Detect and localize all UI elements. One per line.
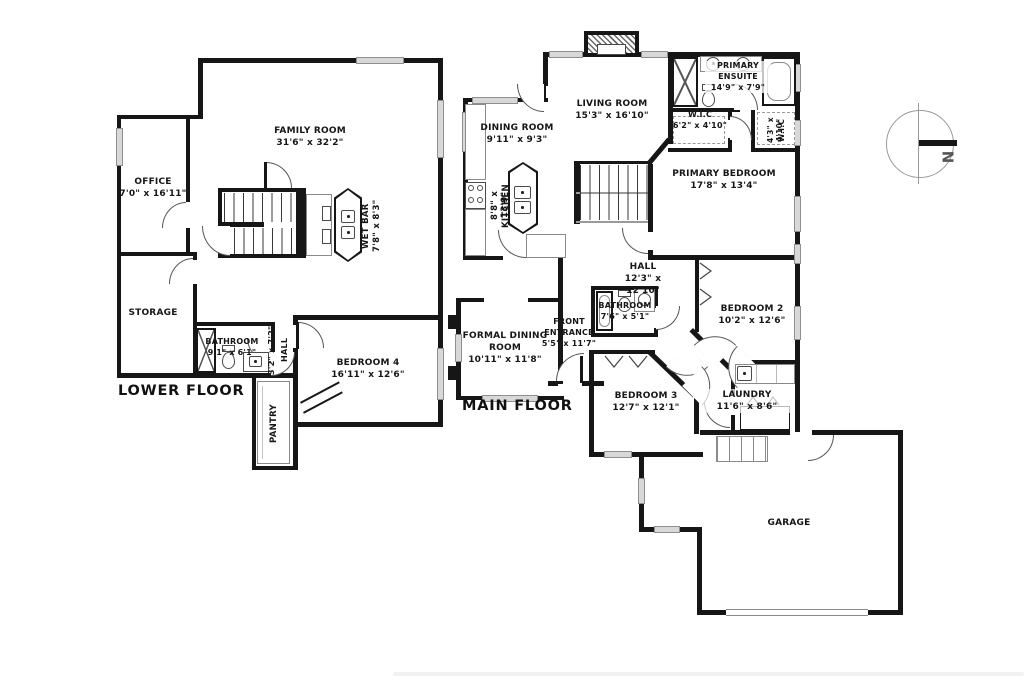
door-arc (622, 228, 648, 254)
wall (591, 350, 655, 354)
room-name: STORAGE (116, 307, 190, 319)
sink-drain (743, 372, 746, 375)
closet-door-line (300, 381, 340, 403)
room-name: BEDROOM 4 (304, 357, 432, 369)
wall (193, 322, 275, 326)
window (794, 120, 801, 146)
door-arc (517, 84, 544, 112)
wall (898, 430, 903, 615)
kitchen-counter (465, 209, 486, 256)
floor-plan-page: FAMILY ROOM 31'6" x 32'2" OFFICE 7'0" x … (0, 0, 1024, 682)
room-dims-hall-lower: 3'2" x 7'2" (267, 324, 276, 376)
room-label-bedroom3: BEDROOM 3 12'7" x 12'1" (596, 390, 696, 414)
window (654, 526, 680, 533)
stair-wall (218, 188, 298, 192)
sink-drain (347, 231, 350, 234)
room-label-hall-main: HALL 12'3" x 12'10" (607, 261, 679, 297)
pantry-shelf-line (262, 386, 263, 459)
wall (117, 115, 203, 119)
room-name-wet-bar: WET BAR (361, 196, 371, 256)
wall (548, 381, 558, 386)
wall (795, 52, 800, 432)
room-label-garage: GARAGE (756, 517, 822, 529)
stair-wall (296, 188, 306, 258)
burner (468, 185, 474, 191)
room-label-living-room: LIVING ROOM 15'3" x 16'10" (560, 98, 664, 122)
stair-treads (224, 193, 296, 222)
room-name-pantry: PANTRY (269, 398, 279, 450)
page-edge-shadow (393, 672, 1024, 676)
stair-rail (576, 221, 648, 223)
wall (668, 148, 732, 152)
wall (589, 350, 594, 456)
window (794, 244, 801, 264)
burner (468, 197, 474, 203)
wall (700, 430, 790, 435)
wall (117, 252, 197, 256)
room-label-laundry: LAUNDRY 11'6" x 8'6" (700, 389, 794, 413)
room-label-family-room: FAMILY ROOM 31'6" x 32'2" (245, 125, 375, 149)
stair-treads (234, 228, 296, 254)
toilet (702, 91, 715, 107)
room-name-kitchen: KITCHEN (501, 180, 511, 232)
counter (526, 234, 566, 258)
room-label-bathroom-lower: BATHROOM 9'1" x 6'1" (196, 337, 268, 359)
wet-bar-island-top (336, 190, 360, 260)
wet-bar-counter (306, 194, 332, 256)
room-name: BEDROOM 3 (596, 390, 696, 402)
door-arc (298, 322, 324, 348)
garage-door (726, 609, 868, 616)
main-floor-title: MAIN FLOOR (462, 398, 573, 414)
room-dims: 12'3" x 12'10" (607, 273, 679, 297)
bay-post (448, 366, 457, 380)
wall (293, 422, 443, 427)
wall (697, 527, 702, 615)
room-name: W.I.C (670, 110, 730, 121)
room-dims: 31'6" x 32'2" (245, 137, 375, 149)
closet-bifold-icon (628, 355, 648, 368)
room-name: GARAGE (756, 517, 822, 529)
door-leaf (580, 356, 583, 383)
window (794, 196, 801, 232)
room-name: PRIMARY BEDROOM (650, 168, 798, 180)
room-name-wic2: W.I.C (777, 113, 786, 147)
room-dims: 7'0" x 16'11" (112, 188, 194, 200)
wall (463, 256, 503, 260)
window (604, 451, 632, 458)
room-dims: 16'11" x 12'6" (304, 369, 432, 381)
window (472, 97, 518, 104)
wall (728, 138, 732, 152)
wall (648, 255, 798, 260)
room-dims: 17'8" x 13'4" (650, 180, 798, 192)
room-dims: 9'11" x 9'3" (465, 134, 569, 146)
window (437, 100, 444, 158)
room-name: HALL (607, 261, 679, 273)
wall (198, 58, 443, 63)
window (116, 128, 123, 166)
room-dims: 10'11" x 11'8" (459, 354, 551, 366)
closet-bifold-icon (699, 262, 712, 280)
burner (477, 197, 483, 203)
counter-line (756, 365, 757, 383)
door-leaf (296, 322, 299, 349)
wet-bar-appliance (322, 229, 331, 244)
stair-rail (574, 161, 652, 164)
room-label-front-entrance: FRONT ENTRANCE 5'5" x 11'7" (535, 317, 603, 349)
room-label-primary-ensuite: PRIMARY ENSUITE 14'9" x 7'9" (705, 61, 771, 93)
door-arc (498, 230, 526, 258)
counter-line (776, 365, 777, 383)
door-leaf (264, 162, 267, 188)
shower (672, 57, 698, 107)
room-name: LAUNDRY (700, 389, 794, 401)
garage-steps (716, 436, 768, 462)
room-name: PRIMARY ENSUITE (705, 61, 771, 83)
room-label-wic: W.I.C 6'2" x 4'10" (670, 110, 730, 132)
sink-drain (521, 206, 524, 209)
wall (293, 348, 298, 470)
door-arc (808, 435, 834, 461)
room-dims: 12'7" x 12'1" (596, 402, 696, 414)
room-label-storage: STORAGE (116, 307, 190, 319)
wall (252, 466, 298, 470)
lower-floor-title: LOWER FLOOR (118, 383, 244, 399)
room-dims: 9'1" x 6'1" (196, 348, 268, 359)
room-name: BATHROOM (592, 301, 658, 312)
door-arc (266, 162, 292, 188)
closet-bifold-icon (604, 355, 624, 368)
wet-bar-appliance (322, 206, 331, 221)
window (549, 51, 583, 58)
wall (528, 298, 562, 302)
room-label-bedroom4: BEDROOM 4 16'11" x 12'6" (304, 357, 432, 381)
wall (293, 315, 443, 320)
window (437, 348, 444, 400)
door-arc (162, 202, 186, 228)
room-dims: 14'9" x 7'9" (705, 83, 771, 94)
door-arc (202, 226, 230, 256)
wall (543, 52, 548, 86)
stair-wall (218, 254, 306, 258)
room-name: DINING ROOM (465, 122, 569, 134)
room-name: FAMILY ROOM (245, 125, 375, 137)
door-arc (169, 258, 193, 284)
sink-drain (521, 191, 524, 194)
room-dims: 6'2" x 4'10" (670, 121, 730, 132)
room-name: BATHROOM (196, 337, 268, 348)
room-label-dining-room: DINING ROOM 9'11" x 9'3" (465, 122, 569, 146)
compass-north-label: N (938, 151, 956, 164)
bay-post (448, 315, 457, 329)
room-label-primary-bedroom: PRIMARY BEDROOM 17'8" x 13'4" (650, 168, 798, 192)
room-label-bedroom2: BEDROOM 2 10'2" x 12'6" (704, 303, 800, 327)
closet-door-line (303, 391, 343, 413)
room-label-office: OFFICE 7'0" x 16'11" (112, 176, 194, 200)
door-arc (656, 306, 680, 330)
wall (186, 228, 190, 255)
window (356, 57, 404, 64)
room-name: LIVING ROOM (560, 98, 664, 110)
wall (751, 108, 755, 152)
room-dims: 11'6" x 8'6" (700, 401, 794, 413)
window (638, 478, 645, 504)
sink-drain (254, 360, 257, 363)
door-arc (730, 116, 752, 140)
burner (477, 185, 483, 191)
room-dims: 5'5" x 11'7" (535, 339, 603, 350)
stair-treads (580, 165, 648, 220)
wall (252, 377, 256, 470)
sink-drain (347, 215, 350, 218)
compass-north-arrow (919, 140, 957, 146)
room-name: FRONT ENTRANCE (535, 317, 603, 339)
room-name: BEDROOM 2 (704, 303, 800, 315)
wall (868, 610, 903, 615)
room-dims-wet-bar: 7'8" x 8'3" (372, 196, 382, 256)
wall (193, 252, 197, 260)
room-dims: 15'3" x 16'10" (560, 110, 664, 122)
window (641, 51, 668, 58)
fireplace-firebox (597, 44, 626, 55)
room-dims: 10'2" x 12'6" (704, 315, 800, 327)
room-name: OFFICE (112, 176, 194, 188)
wall (582, 381, 604, 386)
wall (198, 58, 203, 119)
room-name-hall-lower: HALL (280, 326, 289, 374)
